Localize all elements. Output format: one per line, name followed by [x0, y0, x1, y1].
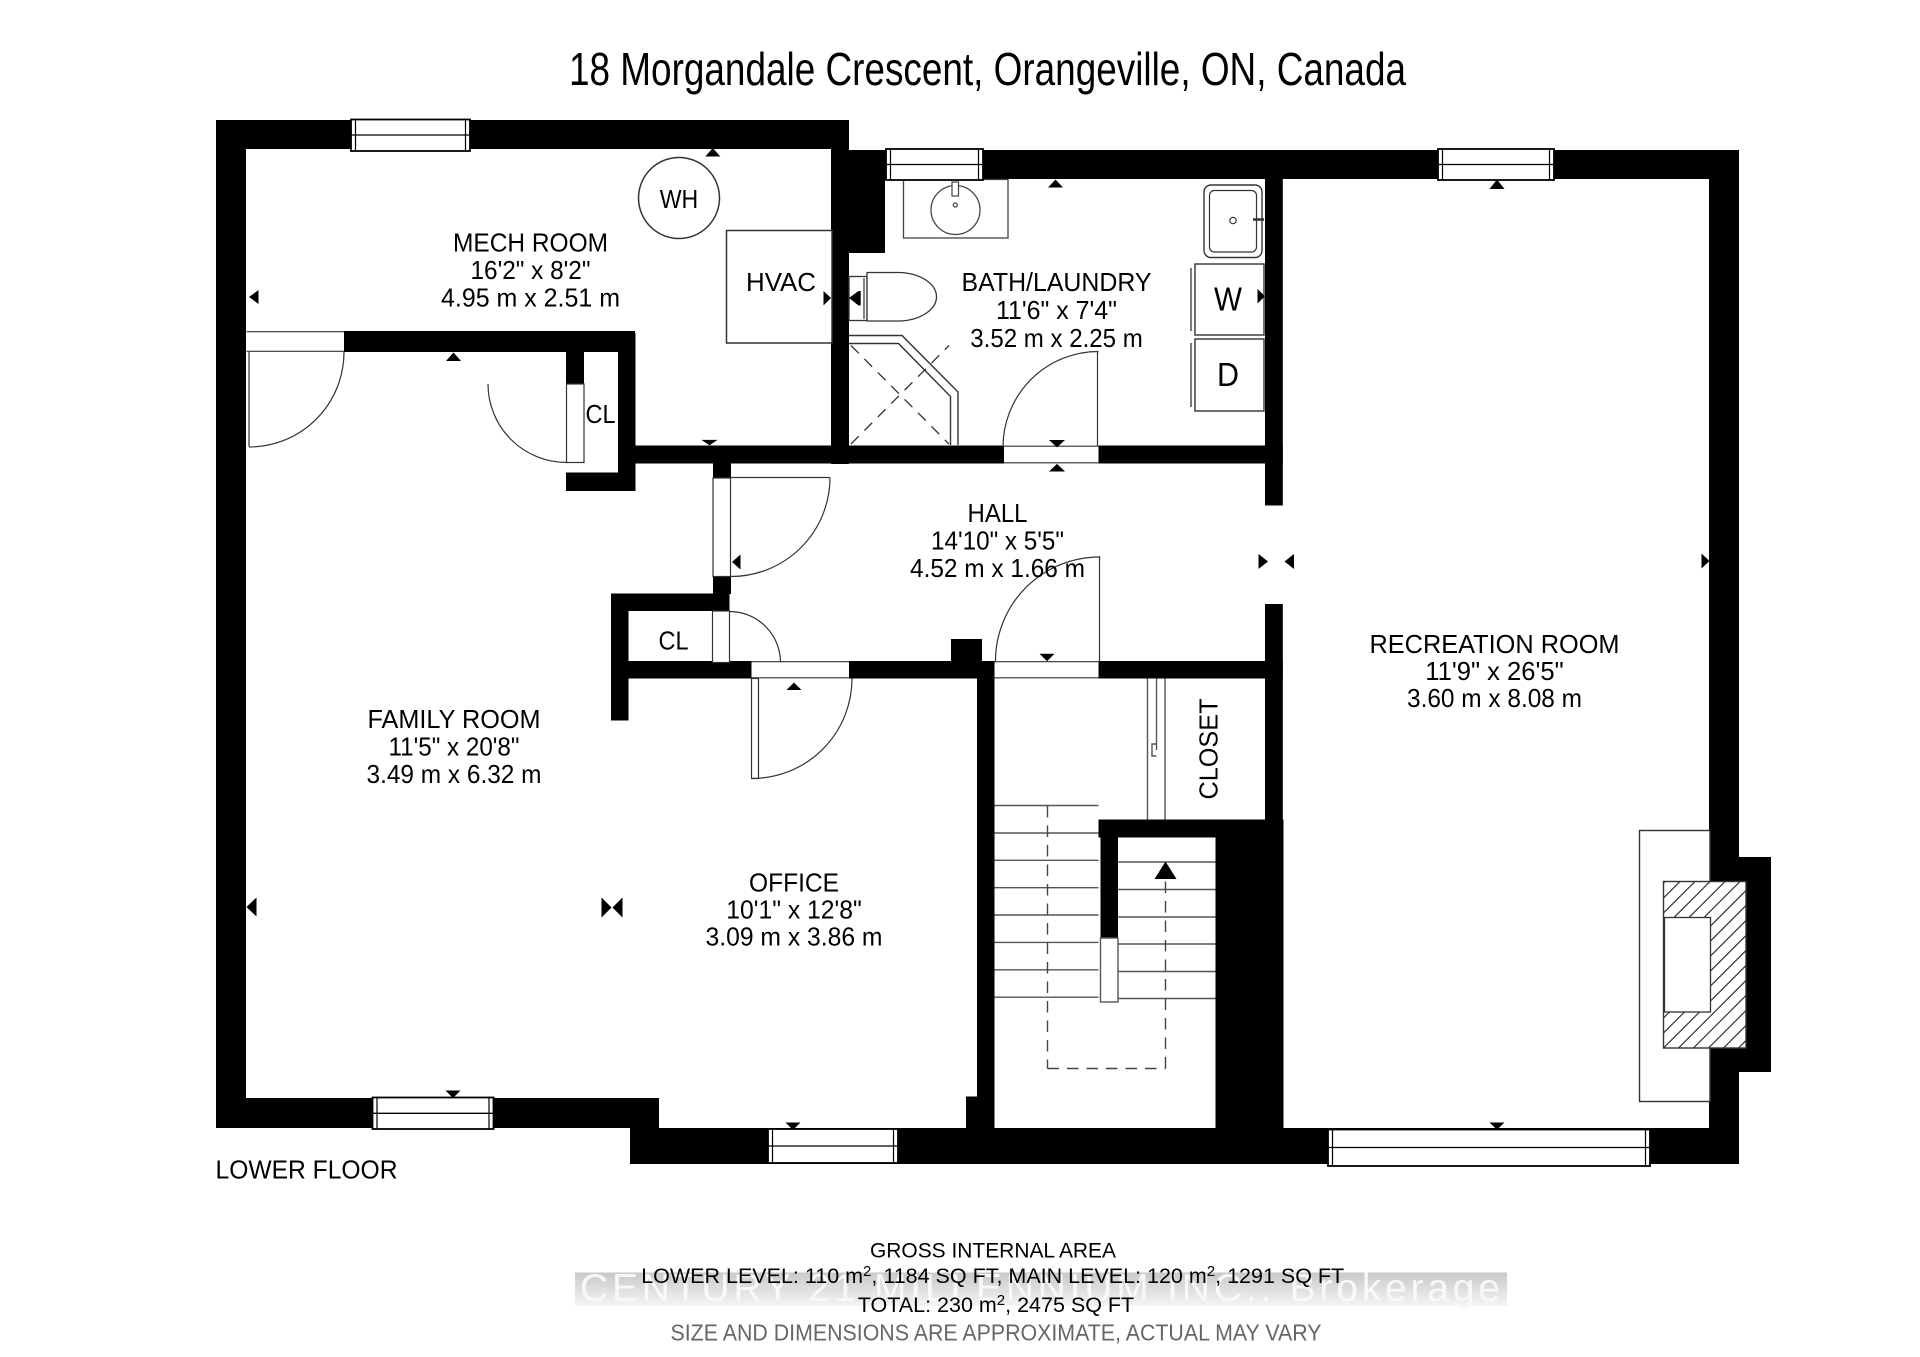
- svg-text:HVAC: HVAC: [746, 267, 816, 297]
- svg-text:LOWER LEVEL: 110 m2, 1184 SQ F: LOWER LEVEL: 110 m2, 1184 SQ FT, MAIN LE…: [641, 1263, 1344, 1288]
- svg-text:18 Morgandale Crescent, Orange: 18 Morgandale Crescent, Orangeville, ON,…: [569, 43, 1406, 95]
- svg-text:4.52 m x 1.66 m: 4.52 m x 1.66 m: [910, 553, 1085, 583]
- svg-text:16'2" x 8'2": 16'2" x 8'2": [471, 255, 591, 285]
- svg-text:11'5" x 20'8": 11'5" x 20'8": [389, 732, 520, 762]
- svg-text:14'10" x 5'5": 14'10" x 5'5": [931, 526, 1064, 556]
- svg-text:FAMILY ROOM: FAMILY ROOM: [368, 704, 541, 734]
- svg-text:CLOSET: CLOSET: [1194, 698, 1224, 799]
- svg-text:10'1" x 12'8": 10'1" x 12'8": [726, 895, 862, 925]
- svg-text:BATH/LAUNDRY: BATH/LAUNDRY: [962, 267, 1152, 297]
- svg-text:3.09 m x 3.86 m: 3.09 m x 3.86 m: [706, 922, 883, 952]
- svg-text:SIZE AND DIMENSIONS ARE APPROX: SIZE AND DIMENSIONS ARE APPROXIMATE, ACT…: [671, 1319, 1322, 1345]
- svg-text:CL: CL: [659, 626, 689, 656]
- svg-text:3.49 m x 6.32 m: 3.49 m x 6.32 m: [367, 759, 542, 789]
- svg-text:HALL: HALL: [968, 498, 1028, 528]
- svg-text:RECREATION ROOM: RECREATION ROOM: [1370, 629, 1620, 659]
- svg-text:WH: WH: [660, 184, 699, 214]
- svg-text:11'6" x 7'4": 11'6" x 7'4": [996, 295, 1117, 325]
- svg-text:W: W: [1214, 281, 1243, 318]
- svg-text:MECH ROOM: MECH ROOM: [453, 228, 608, 258]
- svg-text:11'9" x 26'5": 11'9" x 26'5": [1425, 656, 1564, 686]
- svg-text:CL: CL: [586, 399, 616, 429]
- svg-text:3.60 m x 8.08 m: 3.60 m x 8.08 m: [1407, 683, 1582, 713]
- svg-text:TOTAL: 230 m2, 2475 SQ FT: TOTAL: 230 m2, 2475 SQ FT: [858, 1292, 1134, 1317]
- svg-text:GROSS INTERNAL AREA: GROSS INTERNAL AREA: [870, 1239, 1117, 1263]
- svg-text:4.95 m x 2.51 m: 4.95 m x 2.51 m: [441, 283, 620, 313]
- svg-text:LOWER FLOOR: LOWER FLOOR: [216, 1155, 398, 1185]
- svg-text:3.52 m x 2.25 m: 3.52 m x 2.25 m: [970, 323, 1143, 353]
- svg-text:D: D: [1217, 356, 1239, 393]
- svg-text:OFFICE: OFFICE: [749, 868, 839, 898]
